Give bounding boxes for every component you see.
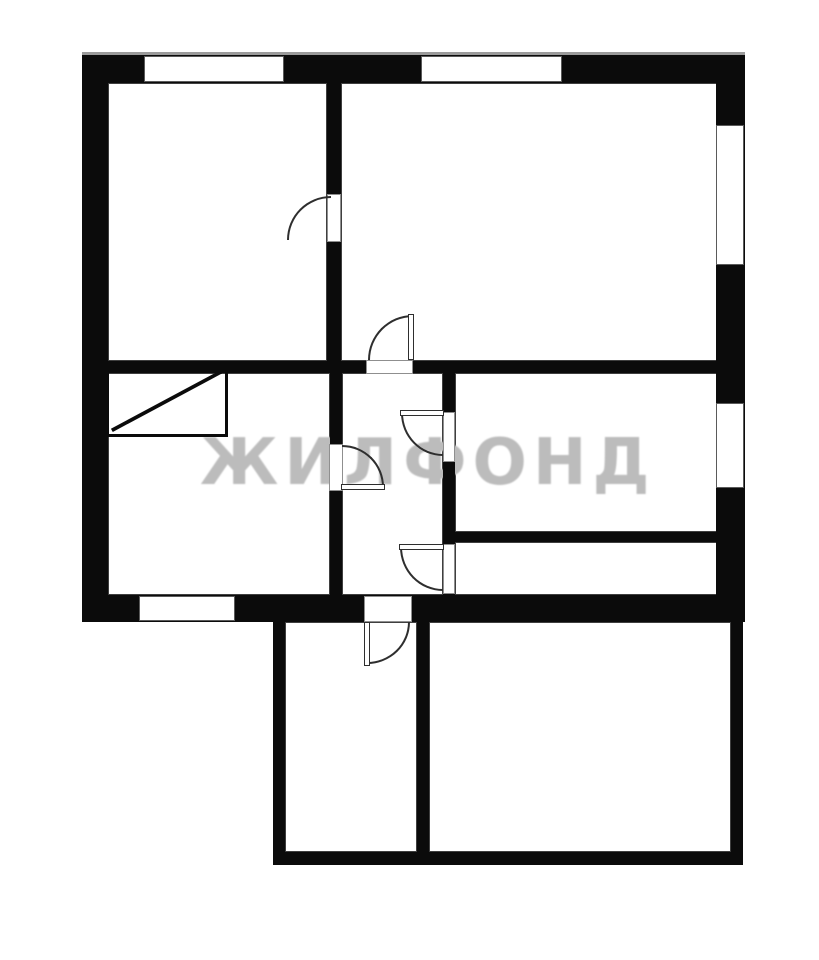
window-right-lower bbox=[716, 403, 744, 488]
door-leaf-hall-right-dn bbox=[399, 544, 444, 550]
room-ext-right bbox=[429, 622, 731, 852]
door-leaf-hall-left bbox=[341, 484, 385, 490]
wall-outer-left bbox=[82, 55, 108, 622]
door-leaf-hall-bottom bbox=[364, 622, 370, 666]
door-leaf-hall-top bbox=[408, 314, 414, 360]
wall-ext-left bbox=[273, 622, 285, 865]
window-top-right bbox=[421, 56, 562, 82]
door-opening-hall-top bbox=[366, 360, 413, 374]
door-leaf-hall-right-up bbox=[400, 410, 444, 416]
room-ext-left bbox=[285, 622, 417, 852]
wall-mid-horizontal bbox=[108, 361, 718, 373]
wall-ext-right bbox=[731, 622, 743, 865]
door-opening-hall-right-dn bbox=[443, 544, 455, 594]
wall-ext-divider bbox=[417, 622, 429, 855]
door-opening-hall-right-up bbox=[443, 412, 455, 462]
wall-mid-right-divider bbox=[443, 532, 718, 542]
wall-ext-bottom bbox=[273, 852, 743, 865]
closet-diagonal-line bbox=[109, 370, 225, 434]
door-opening-hall-bottom bbox=[364, 596, 412, 622]
closet-with-diagonal bbox=[106, 367, 228, 437]
window-right-upper bbox=[716, 125, 744, 265]
window-top-left bbox=[144, 56, 284, 82]
floor-plan-canvas: ЖИЛФОНД bbox=[0, 0, 819, 960]
window-bottom-left bbox=[139, 596, 235, 621]
room-narrow-right bbox=[455, 542, 718, 595]
